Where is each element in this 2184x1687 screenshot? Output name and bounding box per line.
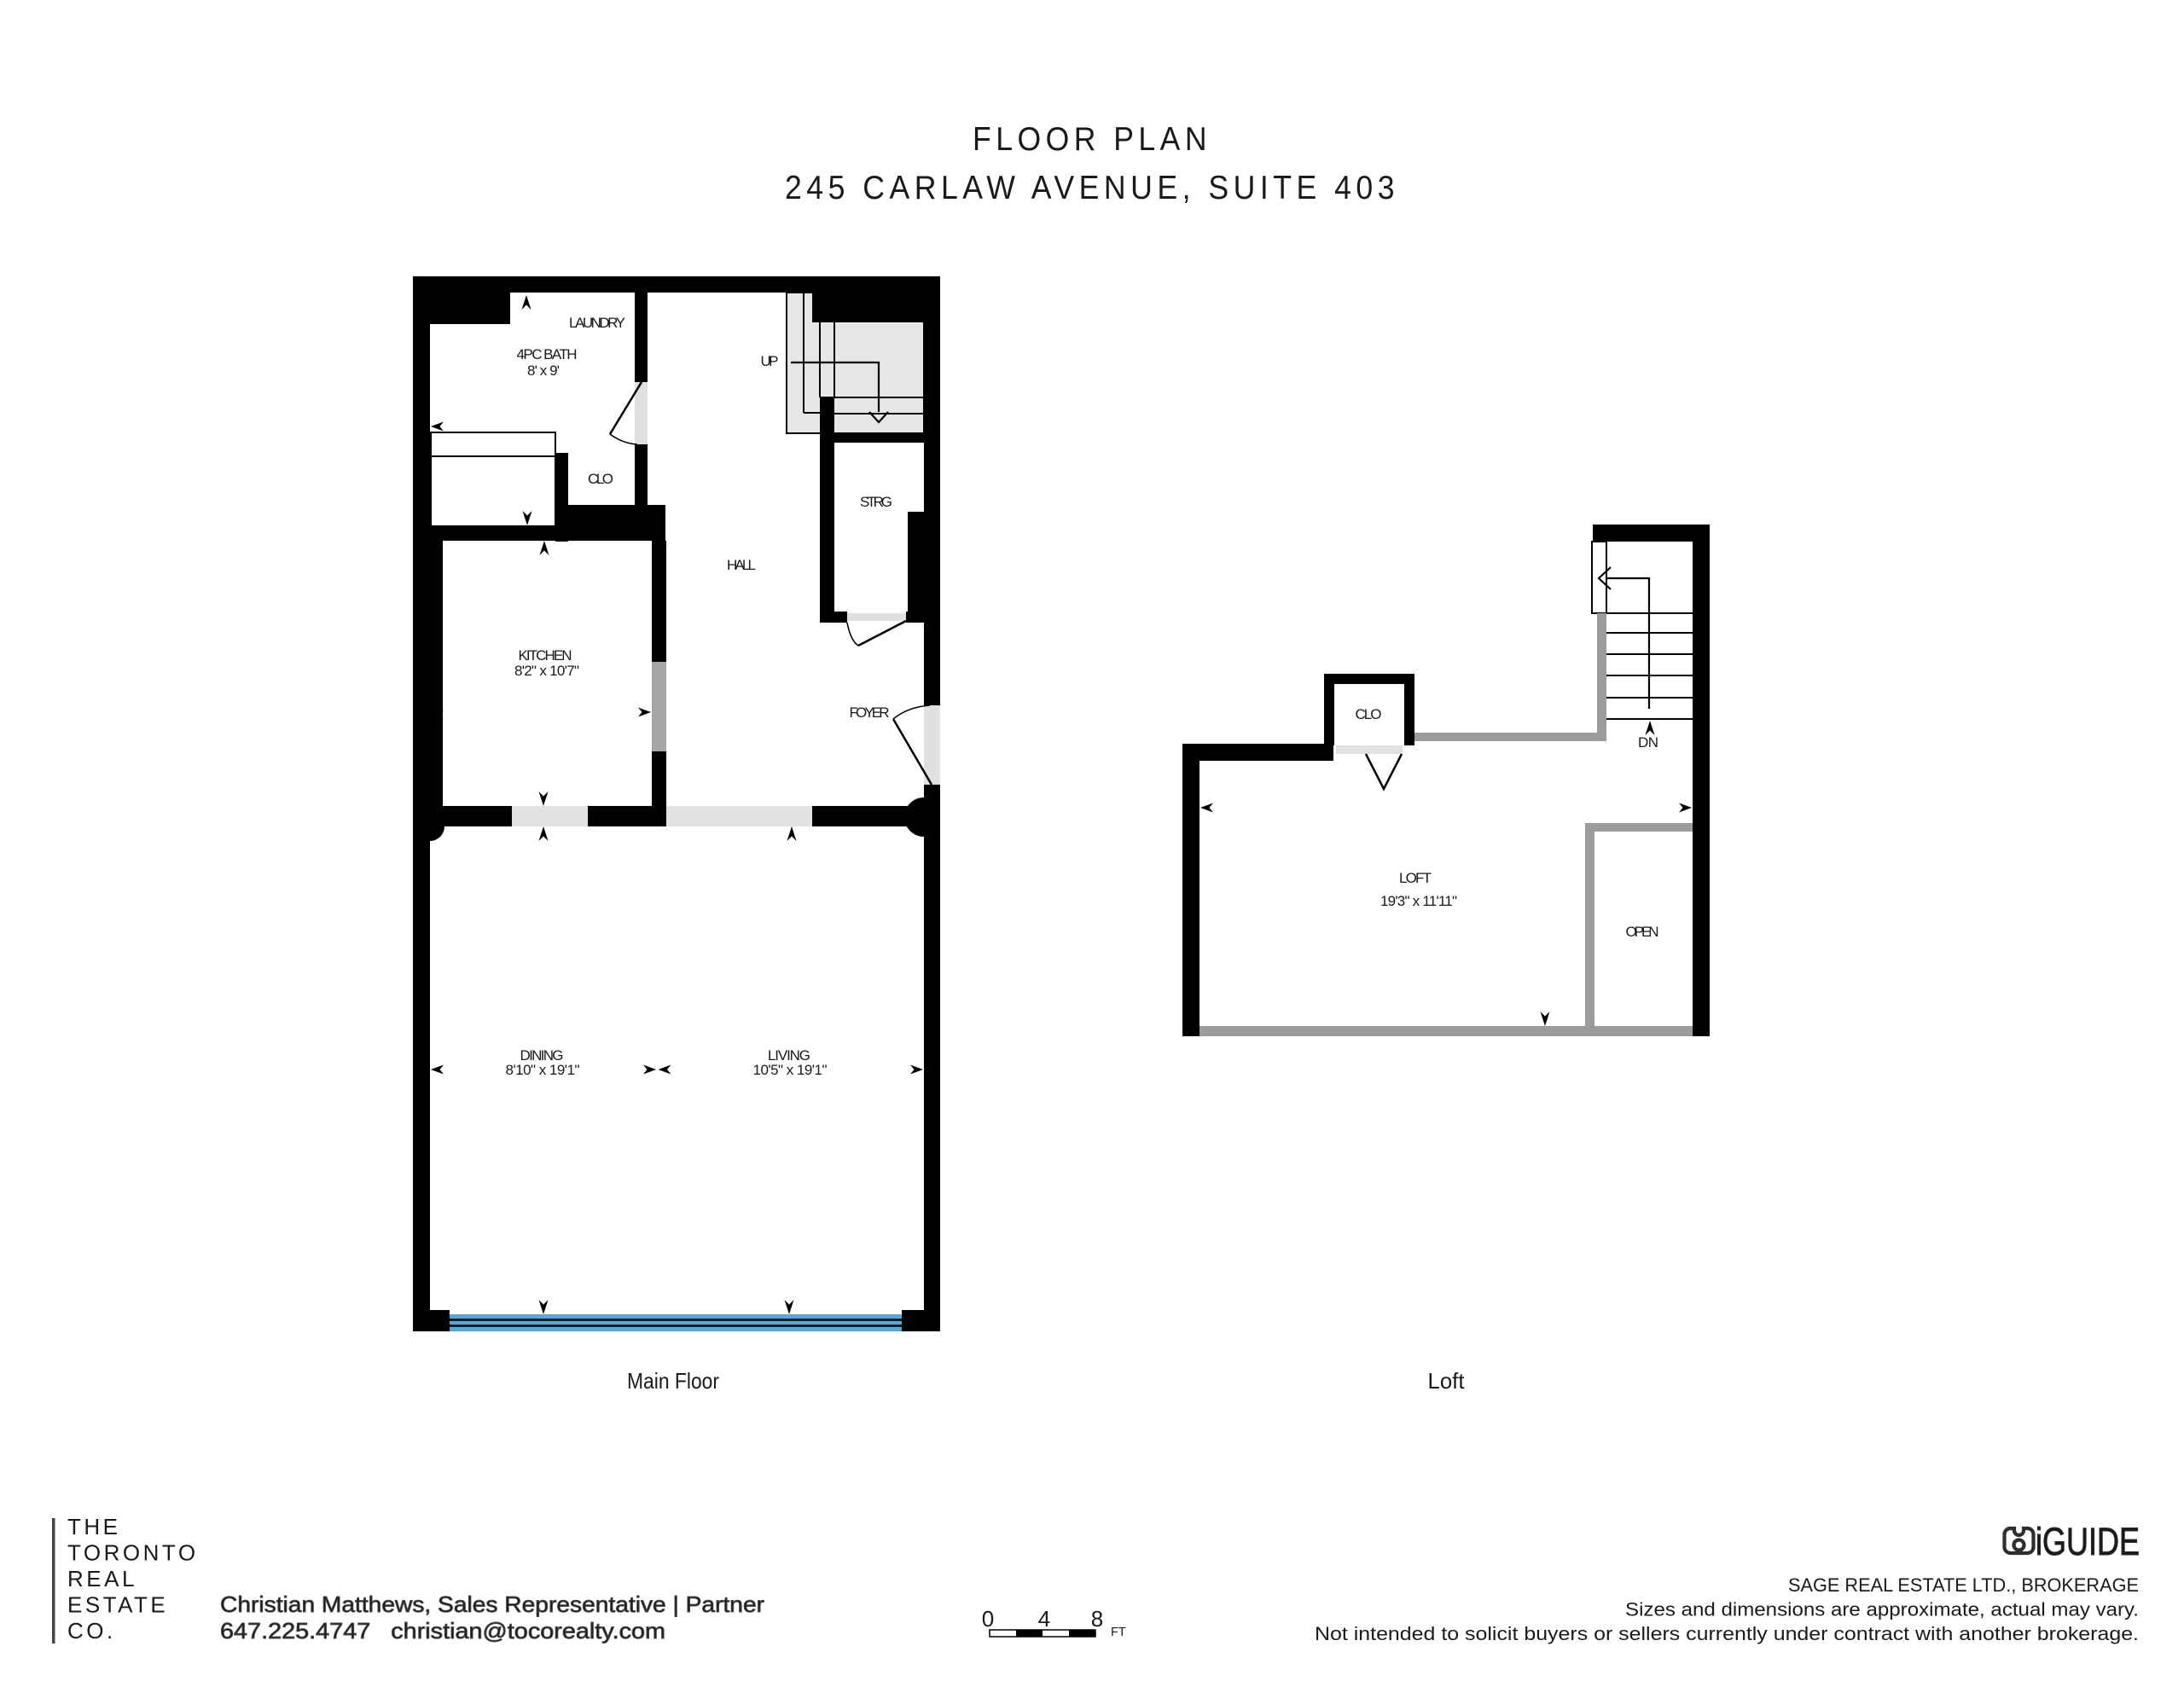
svg-text:Christian Matthews, Sales Repr: Christian Matthews, Sales Representative… bbox=[220, 1591, 764, 1617]
svg-text:4: 4 bbox=[1038, 1606, 1050, 1632]
svg-text:LAUNDRY: LAUNDRY bbox=[569, 315, 625, 331]
svg-text:KITCHEN: KITCHEN bbox=[519, 647, 572, 664]
svg-text:10'5" x 19'1": 10'5" x 19'1" bbox=[753, 1062, 828, 1078]
svg-text:SAGE REAL ESTATE LTD., BROKERA: SAGE REAL ESTATE LTD., BROKERAGE bbox=[1788, 1574, 2139, 1596]
svg-text:STRG: STRG bbox=[860, 494, 892, 510]
svg-text:HALL: HALL bbox=[727, 557, 756, 573]
svg-text:OPEN: OPEN bbox=[1626, 924, 1659, 940]
svg-text:DN: DN bbox=[1638, 734, 1658, 751]
svg-text:8'10" x 19'1": 8'10" x 19'1" bbox=[506, 1062, 580, 1078]
svg-text:19'3" x 11'11": 19'3" x 11'11" bbox=[1380, 893, 1457, 909]
svg-text:UP: UP bbox=[761, 353, 779, 369]
svg-text:THE: THE bbox=[67, 1514, 121, 1539]
svg-text:iGUIDE: iGUIDE bbox=[2036, 1520, 2140, 1563]
svg-text:8'2" x 10'7": 8'2" x 10'7" bbox=[514, 663, 579, 679]
svg-text:Not intended to solicit buyers: Not intended to solicit buyers or seller… bbox=[1315, 1623, 2139, 1644]
svg-text:FT: FT bbox=[1111, 1626, 1126, 1639]
svg-text:TORONTO: TORONTO bbox=[67, 1540, 199, 1566]
svg-text:Loft: Loft bbox=[1428, 1368, 1466, 1394]
svg-text:Main Floor: Main Floor bbox=[627, 1368, 719, 1394]
svg-text:Sizes and dimensions are appro: Sizes and dimensions are approximate, ac… bbox=[1625, 1599, 2139, 1620]
svg-text:245 CARLAW AVENUE, SUITE 403: 245 CARLAW AVENUE, SUITE 403 bbox=[785, 170, 1399, 206]
svg-text:8' x 9': 8' x 9' bbox=[527, 362, 560, 379]
svg-text:4PC BATH: 4PC BATH bbox=[517, 346, 578, 362]
svg-text:647.225.4747 christian@tocor: 647.225.4747 christian@tocorealty.com bbox=[220, 1618, 665, 1644]
svg-text:CLO: CLO bbox=[588, 471, 613, 487]
svg-text:0: 0 bbox=[982, 1606, 994, 1632]
svg-text:FOYER: FOYER bbox=[850, 704, 890, 721]
svg-text:ESTATE: ESTATE bbox=[67, 1592, 168, 1618]
svg-text:CLO: CLO bbox=[1356, 706, 1382, 722]
svg-text:LOFT: LOFT bbox=[1399, 870, 1432, 886]
svg-text:REAL: REAL bbox=[67, 1566, 137, 1591]
svg-text:FLOOR PLAN: FLOOR PLAN bbox=[973, 121, 1211, 158]
svg-text:8: 8 bbox=[1091, 1606, 1103, 1632]
svg-text:CO.: CO. bbox=[67, 1618, 116, 1644]
